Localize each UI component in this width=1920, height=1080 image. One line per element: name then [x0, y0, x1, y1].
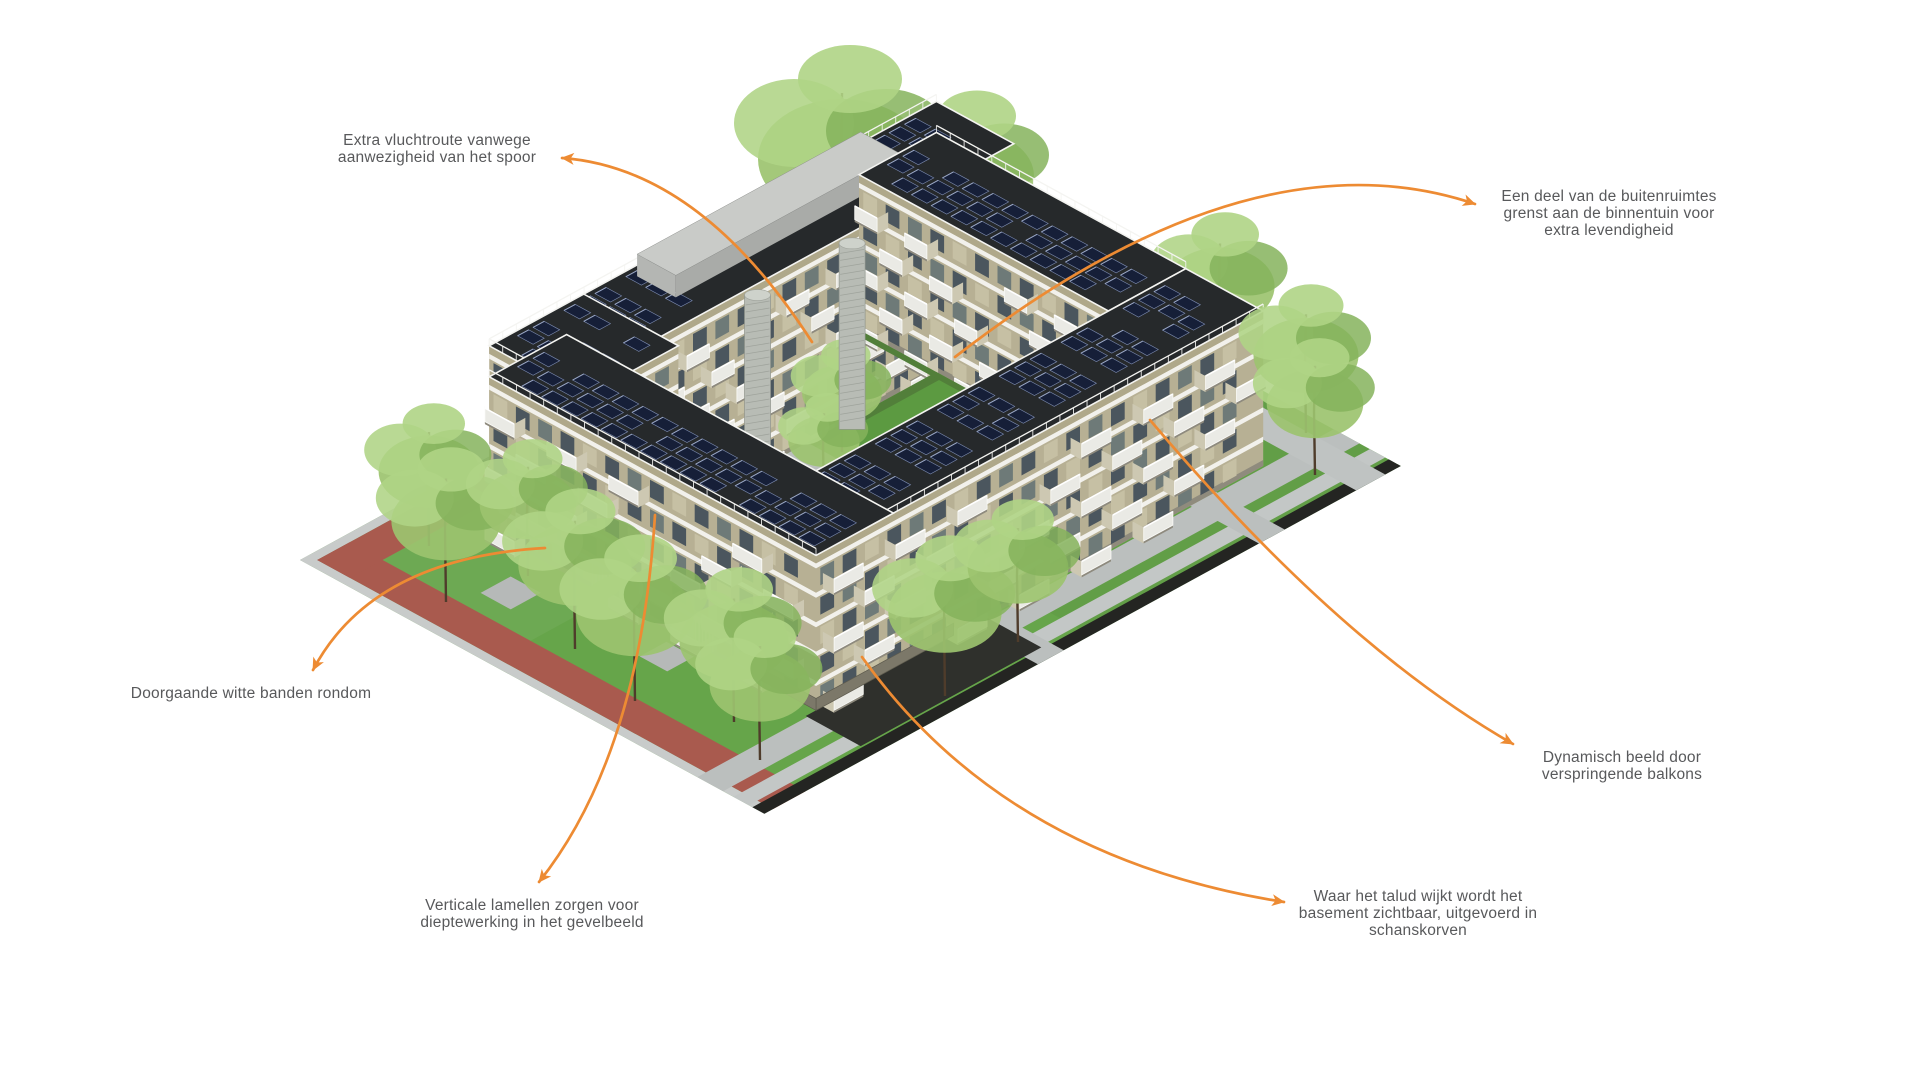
annotation-label: Dynamisch beeld doorverspringende balkon…	[1542, 749, 1702, 783]
annotation-label: Verticale lamellen zorgen voordieptewerk…	[420, 897, 643, 931]
annotation-label: Waar het talud wijkt wordt hetbasement z…	[1299, 888, 1537, 939]
annotation-label: Extra vluchtroute vanwegeaanwezigheid va…	[338, 132, 536, 166]
annotation-label: Een deel van de buitenruimtesgrenst aan …	[1501, 188, 1716, 239]
axonometric-illustration-page: Extra vluchtroute vanwegeaanwezigheid va…	[0, 0, 1920, 1080]
spiral-staircase	[839, 238, 865, 430]
building-diagram-canvas: Extra vluchtroute vanwegeaanwezigheid va…	[0, 0, 1920, 1080]
annotation-label: Doorgaande witte banden rondom	[131, 685, 371, 702]
